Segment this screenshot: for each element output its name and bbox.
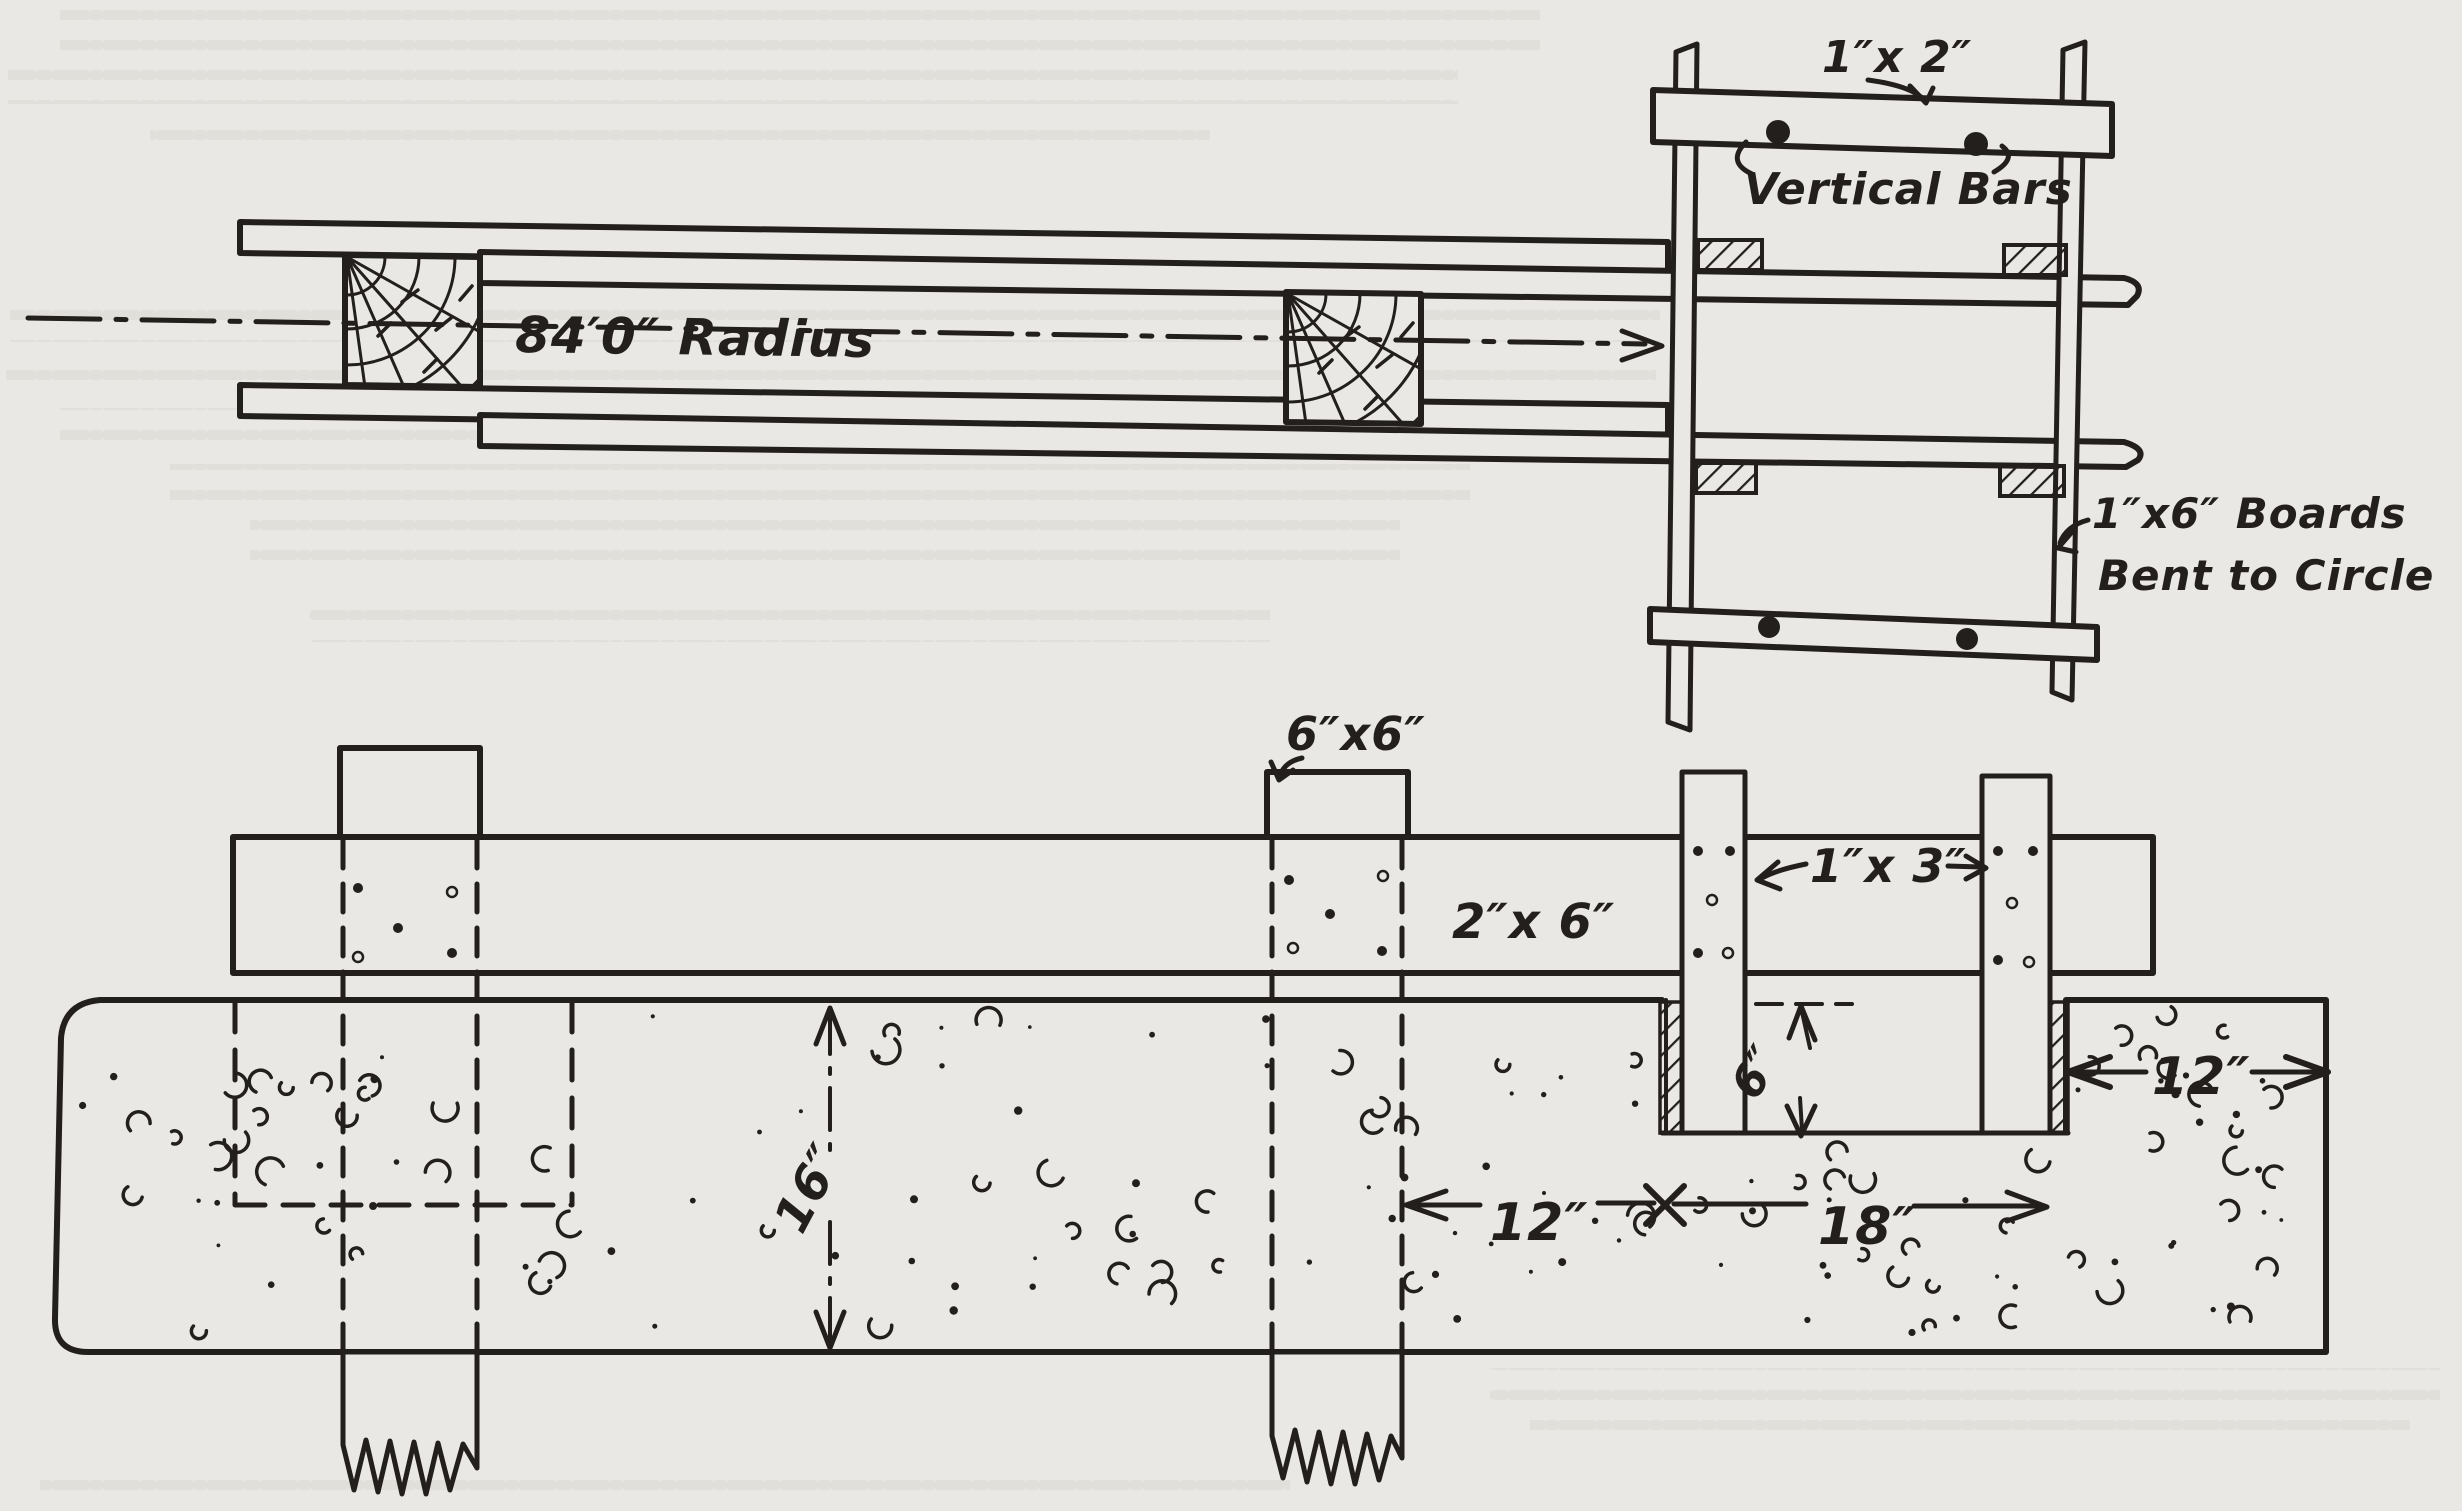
aggregate-mark: [380, 1055, 384, 1059]
aggregate-mark: [1028, 1025, 1032, 1029]
aggregate-mark: [1389, 1215, 1396, 1222]
aggregate-mark: [1719, 1263, 1723, 1267]
aggregate-mark: [1482, 1163, 1490, 1171]
aggregate-mark: [608, 1247, 616, 1255]
aggregate-mark: [1367, 1185, 1371, 1189]
aggregate-mark: [2012, 1284, 2018, 1290]
spacer-block-hatch: [2004, 245, 2066, 275]
aggregate-mark: [2262, 1210, 2267, 1215]
trench-width-label: 18″: [1818, 1197, 1917, 1257]
aggregate-mark: [2255, 1166, 2262, 1173]
aggregate-mark: [1129, 1231, 1136, 1238]
spacer-block-hatch: [2000, 466, 2064, 496]
vertical-bar-dot: [1758, 616, 1780, 638]
aggregate-mark: [214, 1200, 220, 1206]
aggregate-mark: [1908, 1329, 1915, 1336]
form-detail-drawing: 84′0″ Radius 1″x 2″ Vertical Bars 1″x6″ …: [0, 0, 2462, 1511]
aggregate-mark: [1541, 1092, 1546, 1097]
aggregate-mark: [1995, 1274, 1999, 1278]
aggregate-mark: [370, 1075, 378, 1083]
aggregate-mark: [2168, 1243, 2174, 1249]
stud-size-label: 1″x 3″: [1810, 839, 1967, 893]
aggregate-mark: [1592, 1218, 1598, 1224]
aggregate-mark: [317, 1162, 324, 1169]
aggregate-mark: [2112, 1259, 2119, 1266]
aggregate-mark: [1953, 1315, 1960, 1322]
spacer-block-hatch: [1696, 463, 1756, 493]
aggregate-mark: [1529, 1270, 1533, 1274]
aggregate-mark: [2233, 1111, 2240, 1118]
aggregate-mark: [196, 1199, 200, 1203]
aggregate-mark: [523, 1264, 529, 1270]
aggregate-mark: [1033, 1256, 1037, 1260]
vertical-bar-dot: [1766, 120, 1790, 144]
aggregate-mark: [1265, 1063, 1270, 1068]
form-board-section-hatch-left: [1660, 1002, 1682, 1133]
bent-boards-label-line1: 1″x6″ Boards: [2092, 489, 2407, 538]
aggregate-mark: [799, 1109, 803, 1113]
aggregate-mark: [757, 1130, 762, 1135]
aggregate-mark: [2196, 1119, 2203, 1126]
aggregate-mark: [1820, 1262, 1827, 1269]
aggregate-mark: [1749, 1179, 1753, 1183]
radius-label: 84′0″ Radius: [515, 306, 876, 369]
aggregate-mark: [1432, 1271, 1439, 1278]
aggregate-mark: [217, 1244, 221, 1248]
vertical-bar-dot: [1956, 628, 1978, 650]
aggregate-mark: [1824, 1272, 1831, 1279]
aggregate-mark: [2260, 1078, 2266, 1084]
aggregate-mark: [369, 1202, 377, 1210]
aggregate-mark: [1014, 1106, 1022, 1114]
aggregate-mark: [79, 1102, 86, 1109]
bent-boards-label-line2: Bent to Circle: [2098, 551, 2434, 600]
drawing-page: 84′0″ Radius 1″x 2″ Vertical Bars 1″x6″ …: [0, 0, 2462, 1511]
aggregate-mark: [939, 1026, 943, 1030]
aggregate-mark: [2211, 1307, 2216, 1312]
aggregate-mark: [1453, 1231, 1457, 1235]
form-board-section-hatch-right: [2050, 1002, 2068, 1133]
aggregate-mark: [1632, 1101, 1638, 1107]
aggregate-mark: [2227, 1303, 2235, 1311]
aggregate-mark: [1030, 1284, 1036, 1290]
aggregate-mark: [910, 1195, 918, 1203]
aggregate-mark: [110, 1073, 117, 1080]
aggregate-mark: [394, 1159, 400, 1165]
vertical-bars-label: Vertical Bars: [1744, 164, 2073, 215]
post-size-label: 6″x6″: [1286, 707, 1426, 761]
aggregate-mark: [1510, 1091, 1514, 1095]
aggregate-mark: [950, 1306, 958, 1314]
batten-size-label: 1″x 2″: [1822, 32, 1972, 83]
aggregate-mark: [1962, 1197, 1968, 1203]
aggregate-mark: [1749, 1207, 1756, 1214]
aggregate-mark: [2279, 1218, 2283, 1222]
aggregate-mark: [1453, 1315, 1461, 1323]
aggregate-mark: [909, 1258, 916, 1265]
aggregate-mark: [651, 1014, 655, 1018]
aggregate-mark: [832, 1252, 840, 1260]
spacer-block-hatch: [1698, 240, 1762, 270]
aggregate-mark: [939, 1063, 944, 1068]
wale-size-label: 2″x 6″: [1452, 894, 1615, 950]
aggregate-mark: [951, 1282, 959, 1290]
aggregate-mark: [1262, 1015, 1270, 1023]
vertical-bar-dot: [1964, 132, 1988, 156]
stud-right-1x3: [1982, 776, 2050, 1133]
aggregate-mark: [1559, 1075, 1564, 1080]
aggregate-mark: [1307, 1259, 1312, 1264]
aggregate-mark: [268, 1281, 275, 1288]
offset-label: 12″: [1490, 1193, 1589, 1253]
edge-offset-label: 12″: [2152, 1047, 2251, 1107]
aggregate-mark: [1132, 1179, 1140, 1187]
aggregate-mark: [1558, 1258, 1566, 1266]
aggregate-mark: [652, 1324, 657, 1329]
aggregate-mark: [690, 1198, 696, 1204]
batten-top: [1653, 90, 2112, 156]
aggregate-mark: [1617, 1238, 1621, 1242]
aggregate-mark: [1804, 1317, 1810, 1323]
aggregate-mark: [1149, 1032, 1155, 1038]
aggregate-mark: [547, 1279, 552, 1284]
aggregate-mark: [2076, 1087, 2081, 1092]
